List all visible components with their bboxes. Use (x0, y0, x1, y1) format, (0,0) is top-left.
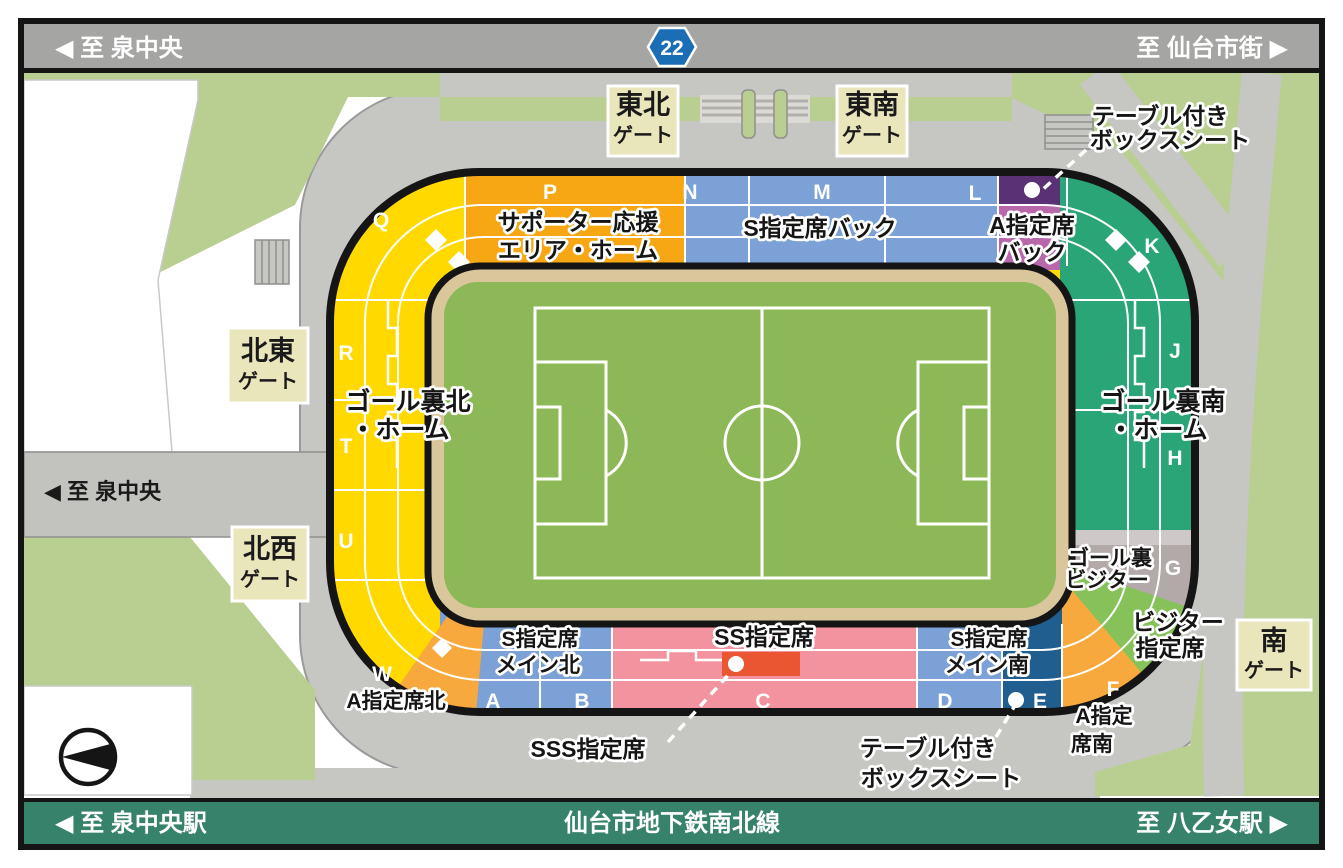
stadium-seat-map: P N M L Q R T U W K J H G A B C D E F サポ… (0, 0, 1343, 868)
gate-minami-line2: ゲート (1244, 659, 1304, 682)
gate-tonan-line1: 東南 (845, 90, 899, 120)
block-letter-C: C (755, 690, 770, 713)
gate-hokusei-line2: ゲート (240, 568, 300, 591)
block-letter-N: N (682, 181, 697, 204)
top-road-left: ◀ 至 泉中央 (55, 34, 184, 62)
label-s-main-south-line2: メイン南 (945, 653, 1029, 677)
pitch (444, 282, 1056, 608)
block-letter-Q: Q (373, 209, 389, 232)
pillar-right (774, 90, 787, 138)
gate-minami: 南 ゲート (1237, 620, 1311, 690)
gate-tohoku: 東北 ゲート (608, 86, 678, 156)
label-goal-visitor-line2: ビジター (1065, 569, 1149, 592)
block-letter-A: A (485, 690, 500, 713)
route-badge: 22 (648, 28, 696, 66)
block-letter-U: U (338, 530, 353, 553)
label-goal-north-line2: ・ホーム (350, 416, 449, 444)
label-goal-south-line1: ゴール裏南 (1100, 387, 1225, 416)
top-road-bar: ◀ 至 泉中央 至 仙台市街 ▶ 22 (24, 24, 1319, 73)
block-letter-D: D (937, 690, 952, 713)
label-goal-north-line1: ゴール裏北 (345, 387, 470, 416)
bottom-bar-right: 至 八乙女駅 ▶ (1136, 809, 1288, 837)
block-letter-W: W (372, 663, 392, 686)
pillar-left (742, 90, 755, 138)
bottom-metro-bar: ◀ 至 泉中央駅 仙台市地下鉄南北線 至 八乙女駅 ▶ (24, 798, 1319, 844)
label-visitor-line1: ビジター (1132, 609, 1224, 635)
block-letter-B: B (574, 690, 589, 713)
map-canvas: P N M L Q R T U W K J H G A B C D E F サポ… (0, 0, 1343, 868)
label-goal-visitor-line1: ゴール裏 (1068, 546, 1153, 570)
label-s-main-north-line2: メイン北 (496, 654, 580, 677)
block-letter-K: K (1144, 235, 1159, 258)
label-supporter-line1: サポーター応援 (498, 209, 660, 235)
label-supporter-line2: エリア・ホーム (498, 237, 658, 263)
label-table-box-main-line2: ボックスシート (861, 765, 1021, 791)
leader-dot-table-main (1008, 692, 1024, 708)
stairs-icon (255, 240, 289, 284)
block-letter-M: M (813, 181, 831, 204)
label-goal-south-line2: ・ホーム (1108, 416, 1207, 444)
gate-hokusei-line1: 北西 (243, 534, 297, 564)
block-letter-R: R (338, 342, 353, 365)
block-letter-L: L (969, 182, 982, 205)
leader-dot-table-back (1024, 182, 1040, 198)
gate-hokuto: 北東 ゲート (228, 328, 308, 403)
section-goal-visitor-upper-band (1060, 530, 1205, 545)
bottom-bar-left: ◀ 至 泉中央駅 (55, 809, 207, 837)
block-letter-P: P (543, 181, 557, 204)
gate-tohoku-line1: 東北 (616, 90, 670, 120)
label-s-back: S指定席バック (743, 215, 896, 241)
label-a-back-line1: A指定席 (989, 212, 1075, 238)
leader-dot-sss (728, 656, 744, 672)
label-ss: SS指定席 (714, 624, 814, 650)
top-road-right: 至 仙台市街 ▶ (1136, 34, 1288, 62)
label-a-back-line2: バック (998, 239, 1067, 265)
block-letter-H: H (1167, 447, 1182, 470)
label-table-box-back-line1: テーブル付き (1092, 103, 1229, 129)
block-letter-G: G (1165, 557, 1181, 580)
label-s-main-north-line1: S指定席 (501, 627, 578, 651)
road-label-izumi-chuo: ◀ 至 泉中央 (44, 479, 162, 504)
gate-hokusei: 北西 ゲート (232, 527, 308, 601)
stairs-icon (1045, 115, 1093, 149)
label-a-south-line1: A指定 (1075, 704, 1132, 728)
block-letter-J: J (1169, 340, 1181, 363)
label-table-box-main-line1: テーブル付き (860, 735, 997, 761)
label-a-south-line2: 席南 (1071, 732, 1113, 756)
gate-tohoku-line2: ゲート (613, 124, 673, 147)
route-badge-number: 22 (660, 37, 683, 60)
label-table-box-back-line2: ボックスシート (1090, 127, 1250, 153)
block-letter-F: F (1107, 678, 1120, 701)
label-s-main-south-line1: S指定席 (950, 627, 1027, 651)
gate-tonan: 東南 ゲート (837, 86, 907, 156)
gate-hokuto-line2: ゲート (238, 370, 298, 393)
gate-tonan-line2: ゲート (842, 124, 902, 147)
bottom-bar-center: 仙台市地下鉄南北線 (564, 809, 780, 837)
compass-icon (61, 730, 115, 784)
block-letter-E: E (1033, 690, 1047, 713)
label-sss: SSS指定席 (530, 736, 645, 762)
gate-minami-line1: 南 (1261, 626, 1288, 656)
label-a-north: A指定席北 (346, 689, 445, 713)
label-visitor-line2: 指定席 (1136, 635, 1205, 661)
gate-hokuto-line1: 北東 (241, 336, 295, 366)
